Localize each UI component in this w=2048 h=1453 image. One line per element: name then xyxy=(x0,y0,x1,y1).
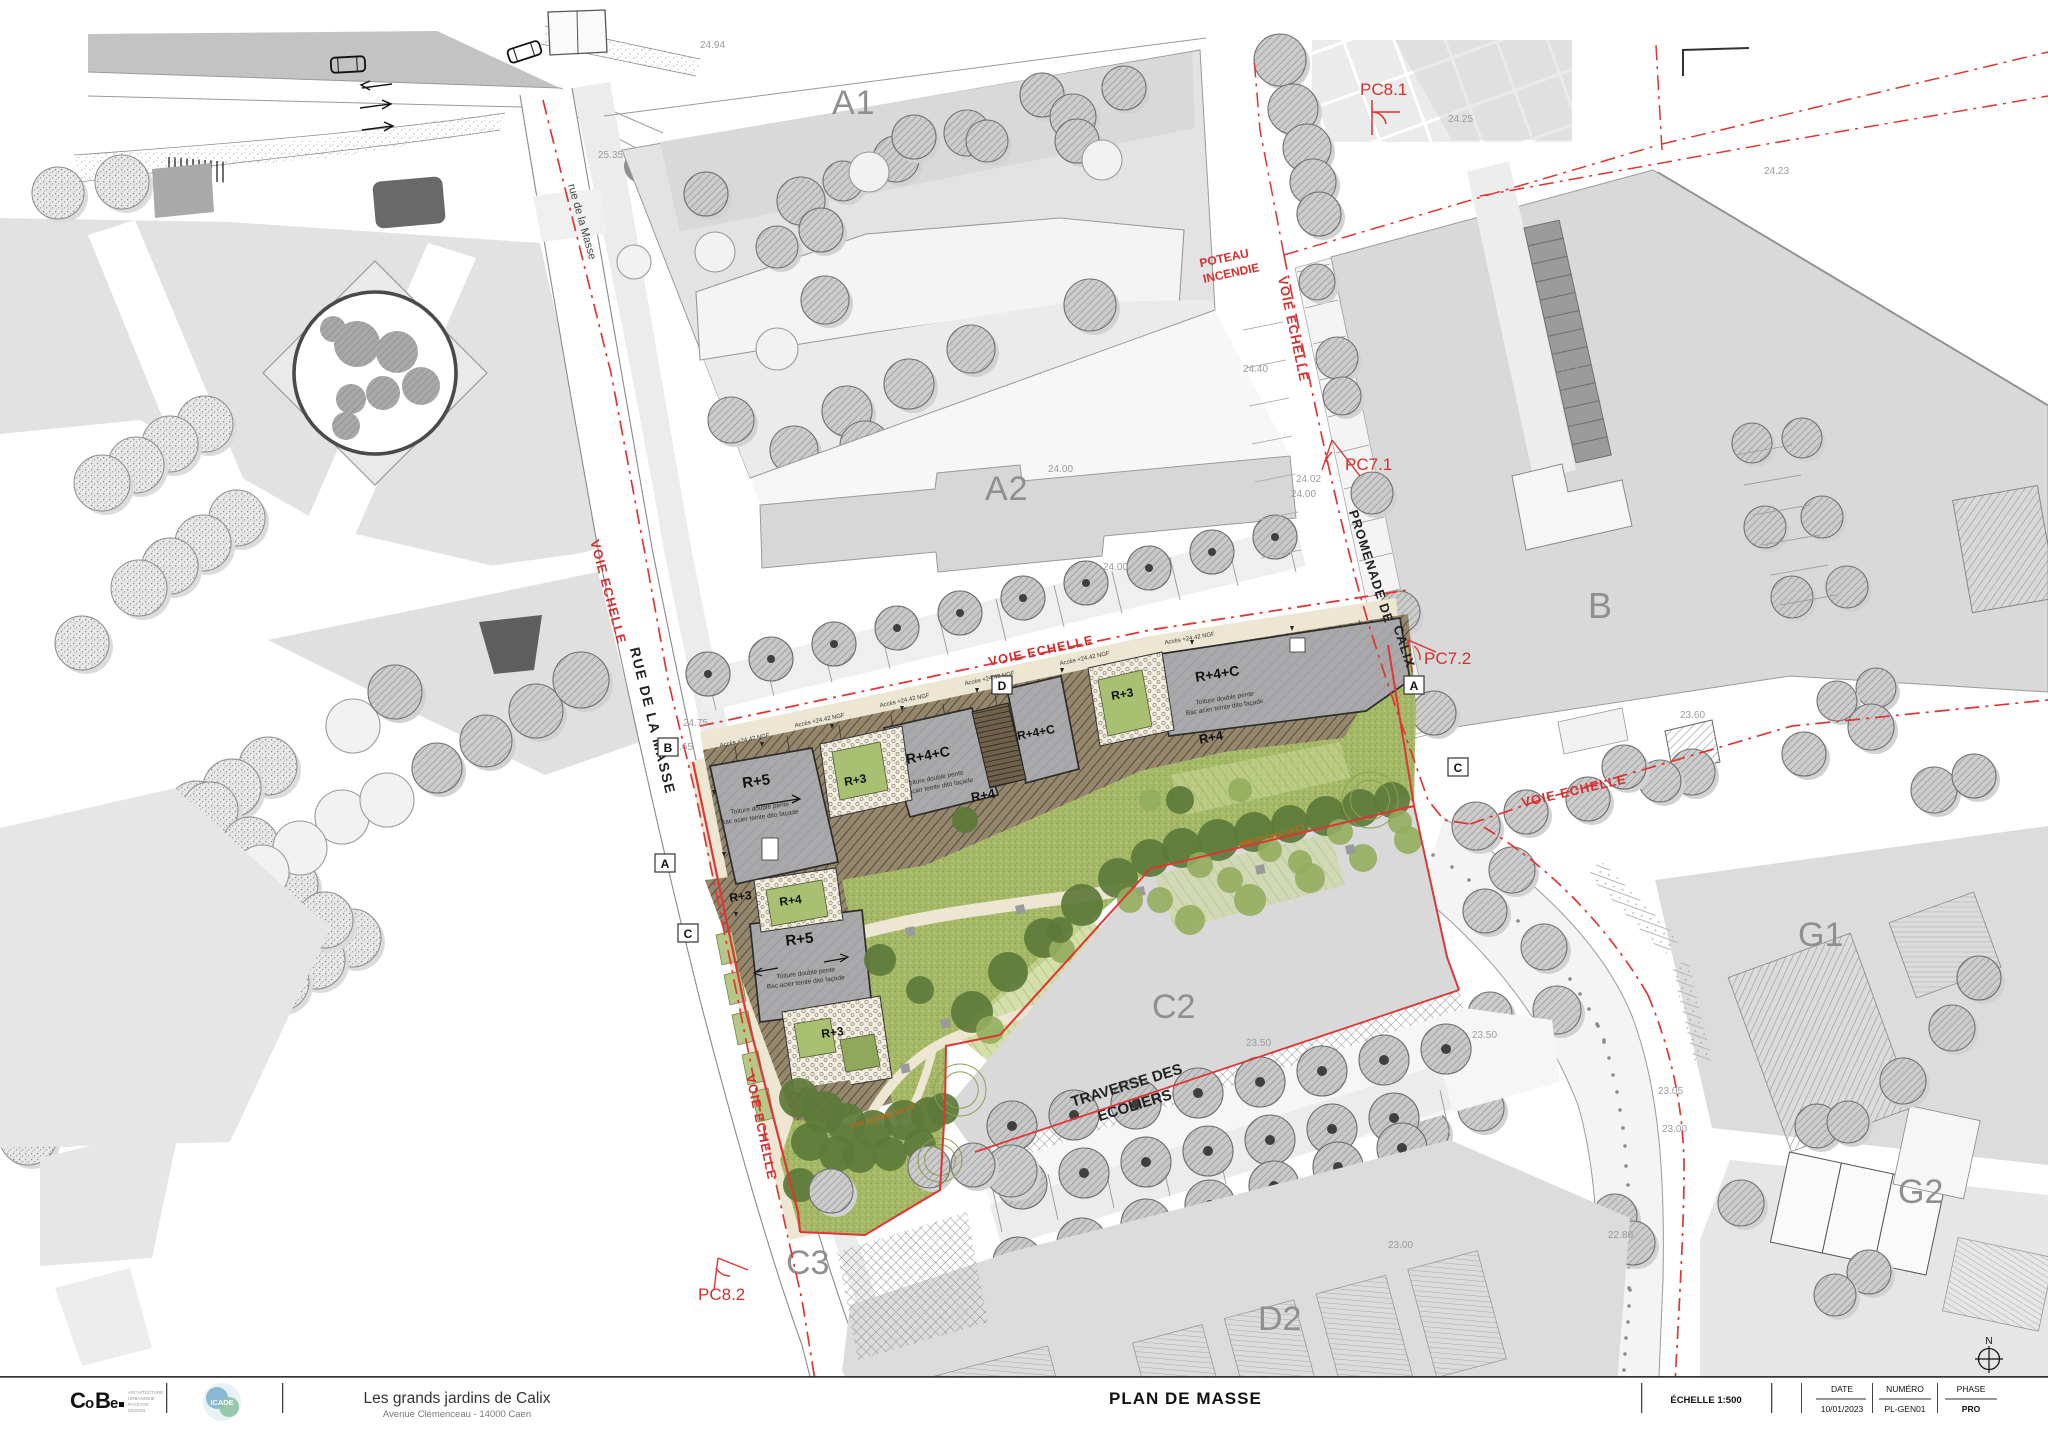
svg-text:C: C xyxy=(684,927,693,941)
svg-text:23.00: 23.00 xyxy=(1388,1240,1413,1251)
svg-text:PL-GEN01: PL-GEN01 xyxy=(1884,1404,1925,1414)
svg-text:PC8.2: PC8.2 xyxy=(698,1285,745,1304)
svg-text:24.23: 24.23 xyxy=(1764,166,1789,177)
svg-text:R+5: R+5 xyxy=(785,929,815,949)
svg-text:24.00: 24.00 xyxy=(1291,489,1316,500)
svg-text:URBANISME: URBANISME xyxy=(128,1396,155,1401)
svg-text:24.00: 24.00 xyxy=(1103,562,1128,573)
svg-text:N: N xyxy=(1985,1336,1992,1347)
svg-text:A2: A2 xyxy=(985,470,1029,508)
svg-text:23.50: 23.50 xyxy=(1472,1030,1497,1041)
svg-text:A: A xyxy=(661,857,670,871)
svg-text:D: D xyxy=(998,679,1007,693)
svg-text:e: e xyxy=(110,1395,118,1412)
svg-text:PAYSAGE: PAYSAGE xyxy=(128,1402,149,1407)
svg-text:24.00: 24.00 xyxy=(1048,464,1073,475)
svg-text:NUMÉRO: NUMÉRO xyxy=(1886,1384,1924,1394)
svg-text:ARCHITECTURE: ARCHITECTURE xyxy=(128,1390,163,1395)
svg-text:ÉCHELLE 1:500: ÉCHELLE 1:500 xyxy=(1670,1395,1741,1406)
svg-text:23.05: 23.05 xyxy=(1658,1086,1683,1097)
svg-text:24.40: 24.40 xyxy=(1243,364,1268,375)
svg-text:DESIGN: DESIGN xyxy=(128,1408,145,1413)
svg-text:C: C xyxy=(70,1388,86,1413)
svg-text:A1: A1 xyxy=(832,84,876,122)
svg-text:22.80: 22.80 xyxy=(1608,1230,1633,1241)
svg-text:23.50: 23.50 xyxy=(1246,1038,1271,1049)
svg-text:24.75: 24.75 xyxy=(683,718,708,729)
svg-text:24.25: 24.25 xyxy=(1448,114,1473,125)
svg-text:G2: G2 xyxy=(1898,1173,1943,1211)
svg-text:B: B xyxy=(664,741,673,755)
svg-text:DATE: DATE xyxy=(1831,1384,1853,1394)
svg-text:G1: G1 xyxy=(1798,916,1843,954)
svg-text:o: o xyxy=(85,1395,94,1412)
svg-text:PC7.2: PC7.2 xyxy=(1424,649,1471,668)
svg-text:Avenue Clémenceau - 14000 Caen: Avenue Clémenceau - 14000 Caen xyxy=(383,1409,531,1420)
svg-text:B: B xyxy=(95,1388,111,1413)
svg-text:C2: C2 xyxy=(1152,988,1195,1026)
svg-text:C3: C3 xyxy=(786,1244,829,1282)
svg-text:24.94: 24.94 xyxy=(700,40,725,51)
svg-text:24.40: 24.40 xyxy=(1560,366,1585,377)
svg-text:B: B xyxy=(1588,585,1612,626)
svg-text:A: A xyxy=(1410,679,1419,693)
svg-text:PLAN DE MASSE: PLAN DE MASSE xyxy=(1109,1389,1262,1408)
svg-text:PRO: PRO xyxy=(1962,1404,1981,1414)
svg-text:D2: D2 xyxy=(1258,1300,1301,1338)
svg-text:10/01/2023: 10/01/2023 xyxy=(1821,1404,1864,1414)
svg-text:PHASE: PHASE xyxy=(1957,1384,1986,1394)
svg-text:PC8.1: PC8.1 xyxy=(1360,80,1407,99)
svg-text:25.35: 25.35 xyxy=(598,150,623,161)
svg-text:24.02: 24.02 xyxy=(1296,474,1321,485)
svg-text:PC7.1: PC7.1 xyxy=(1345,455,1392,474)
svg-text:Les grands jardins de Calix: Les grands jardins de Calix xyxy=(364,1390,551,1407)
svg-text:ICADE: ICADE xyxy=(210,1398,233,1407)
svg-text:C: C xyxy=(1454,761,1463,775)
svg-text:23.60: 23.60 xyxy=(1680,710,1705,721)
svg-text:23.00: 23.00 xyxy=(1662,1124,1687,1135)
